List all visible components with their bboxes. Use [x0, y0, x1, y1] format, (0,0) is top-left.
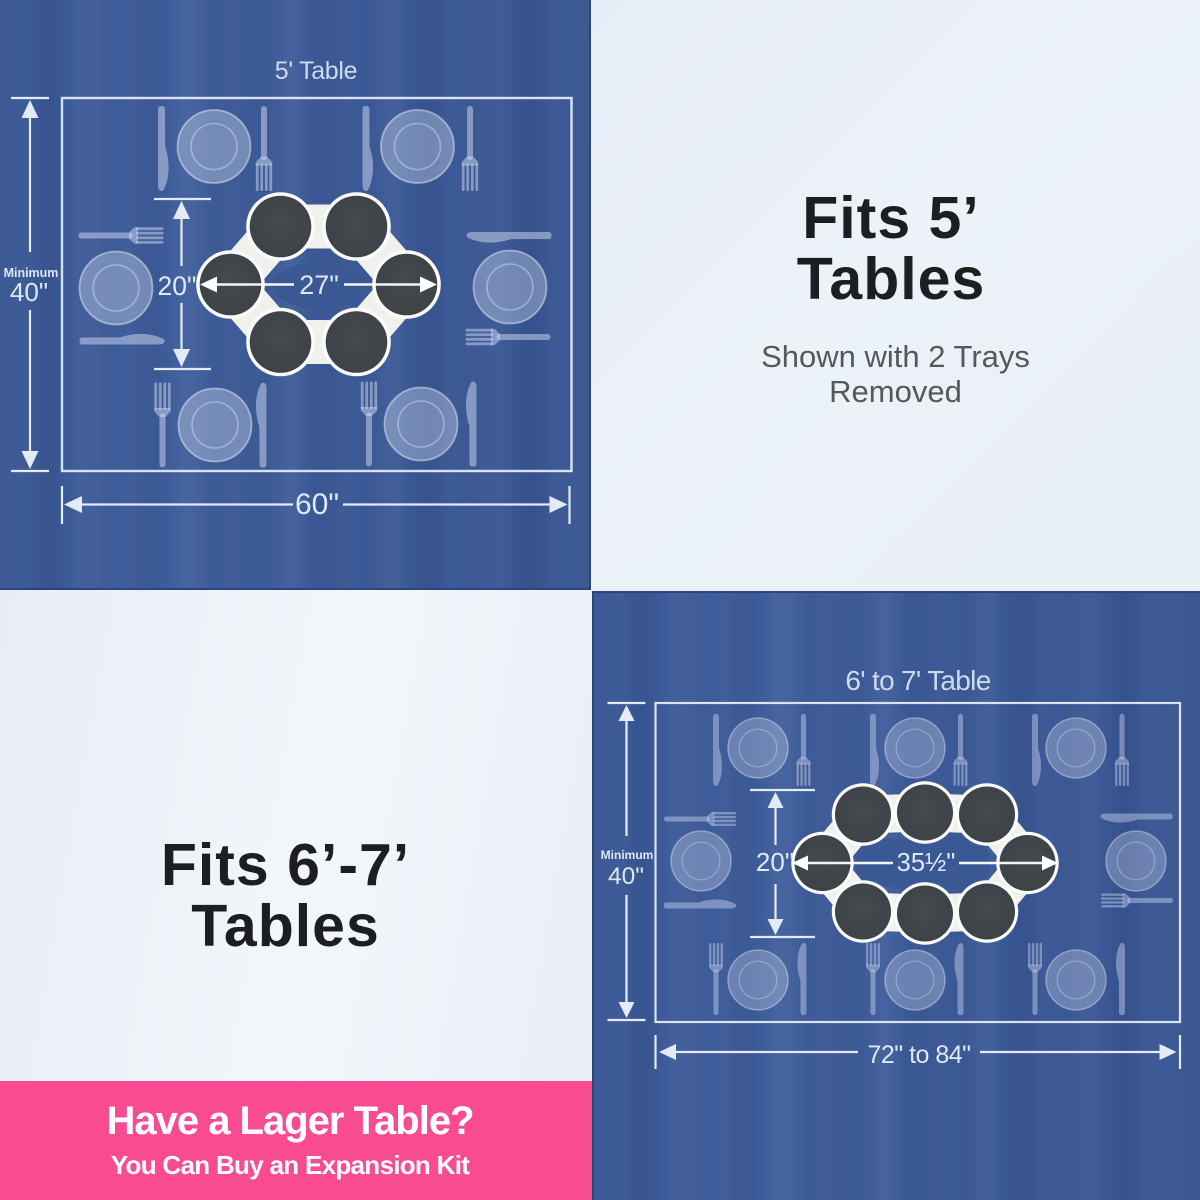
svg-text:35½": 35½" — [897, 849, 956, 877]
svg-text:27": 27" — [299, 270, 339, 300]
svg-text:6' to 7' Table: 6' to 7' Table — [845, 665, 990, 696]
svg-text:60": 60" — [295, 488, 339, 521]
svg-text:Minimum: Minimum — [601, 848, 654, 862]
svg-text:72" to 84": 72" to 84" — [867, 1041, 970, 1069]
svg-text:40": 40" — [10, 277, 48, 307]
svg-text:20": 20" — [756, 847, 794, 877]
svg-text:5' Table: 5' Table — [275, 57, 358, 85]
svg-text:40": 40" — [608, 863, 644, 890]
svg-text:20": 20" — [158, 271, 197, 301]
